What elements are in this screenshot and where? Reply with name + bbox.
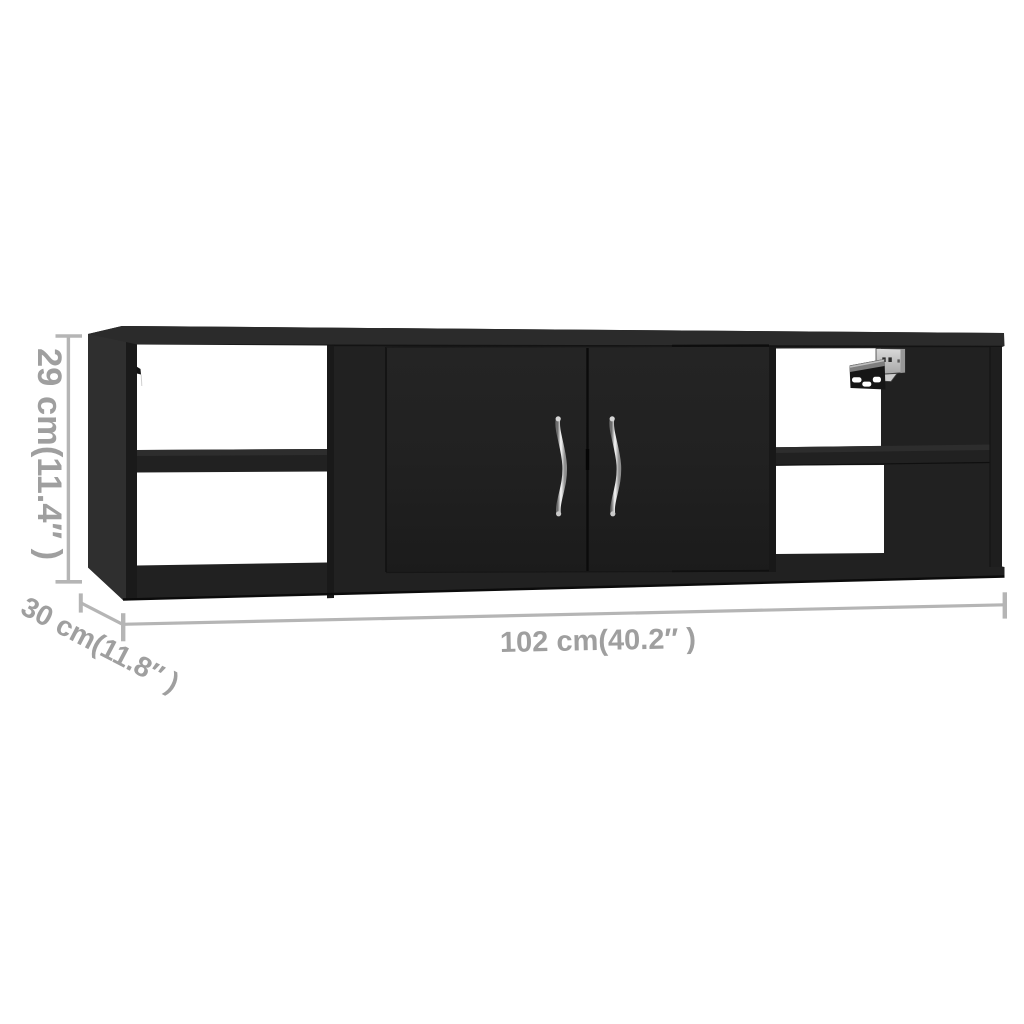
- svg-text:102 cm(40.2″ ): 102 cm(40.2″ ): [500, 623, 697, 659]
- svg-text:29 cm(11.4″ ): 29 cm(11.4″ ): [30, 348, 68, 560]
